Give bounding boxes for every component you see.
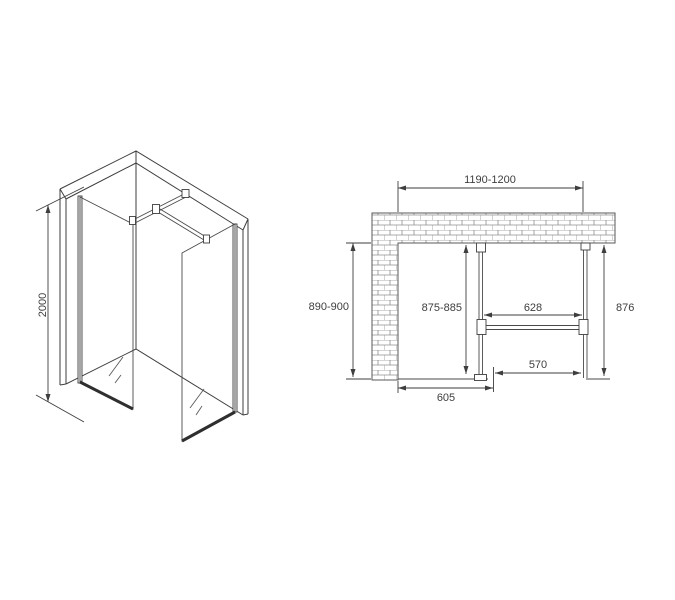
- isometric-view: 2000: [36, 151, 248, 441]
- plan-panel-2: [581, 243, 610, 379]
- dimension-panel1-depth: 875-885: [422, 245, 469, 374]
- walls-isometric: [60, 151, 248, 415]
- plan-view: 1190-1200 890-900 875-885 628: [309, 174, 635, 404]
- plan-panel1-foot: [475, 375, 487, 381]
- plan-panel1-wall-profile: [477, 243, 486, 252]
- glass-panel-1-iso: [78, 196, 133, 409]
- entry-width-dimension-label: 570: [529, 359, 547, 371]
- glass-panel-2-iso: [182, 224, 237, 441]
- panel1-depth-dimension-label: 875-885: [422, 302, 462, 314]
- side-wall-dimension-label: 890-900: [309, 301, 349, 313]
- bar-mid-connector: [153, 205, 160, 214]
- bar-panel2-connector: [204, 235, 210, 243]
- width-dimension-label: 1190-1200: [464, 174, 516, 186]
- plan-support-bar: [477, 320, 588, 335]
- bar-length-dimension-label: 628: [524, 302, 542, 314]
- support-bar-iso: [130, 190, 210, 244]
- plan-bar-left-connector: [477, 320, 486, 335]
- dimension-panel2-depth: 876: [602, 245, 635, 376]
- dimension-entry-width: 570: [494, 359, 582, 392]
- dimension-panel1-offset: 605: [398, 381, 493, 404]
- dimension-side-wall: 890-900: [309, 243, 371, 379]
- bar-panel1-connector: [130, 217, 136, 225]
- plan-bar-right-connector: [579, 320, 588, 335]
- technical-drawing-page: 2000: [0, 0, 675, 600]
- height-dimension-label: 2000: [37, 293, 49, 317]
- panel1-offset-dimension-label: 605: [437, 392, 455, 404]
- shower-enclosure-technical-drawing: 2000: [0, 0, 675, 600]
- plan-panel-1: [475, 243, 487, 381]
- dimension-width: 1190-1200: [398, 174, 583, 212]
- bar-wall-mount: [182, 190, 189, 198]
- dimension-bar-length: 628: [484, 302, 582, 318]
- plan-panel2-wall-profile: [581, 243, 590, 250]
- plan-walls: [372, 213, 615, 380]
- panel2-depth-dimension-label: 876: [616, 302, 634, 314]
